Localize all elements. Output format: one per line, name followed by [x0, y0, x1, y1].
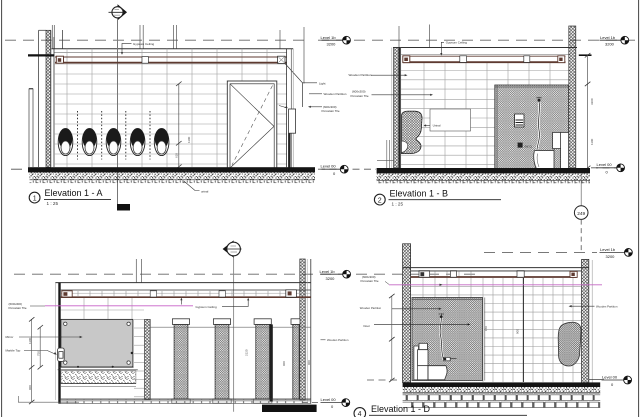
svg-text:610: 610 [175, 153, 179, 158]
svg-text:249: 249 [577, 211, 585, 217]
svg-text:Wooden Partition: Wooden Partition [349, 73, 372, 77]
svg-text:Urinal: Urinal [433, 124, 441, 128]
svg-text:Door: Door [364, 324, 371, 328]
svg-text:1: 1 [33, 195, 37, 202]
svg-text:Elevation 1 - A: Elevation 1 - A [45, 188, 103, 198]
svg-text:Level 00: Level 00 [597, 162, 613, 167]
svg-text:Elevation 1 - D: Elevation 1 - D [371, 404, 431, 414]
svg-text:Porcelain Tile: Porcelain Tile [351, 94, 369, 98]
svg-text:Porcelain Tile: Porcelain Tile [322, 109, 340, 113]
svg-text:900: 900 [28, 385, 32, 390]
svg-text:150: 150 [484, 326, 488, 331]
svg-text:Wooden Partition: Wooden Partition [327, 338, 349, 342]
svg-text:3200: 3200 [326, 276, 336, 281]
svg-text:1 : 25: 1 : 25 [47, 201, 59, 206]
svg-text:2: 2 [378, 197, 382, 204]
svg-text:Level 1b: Level 1b [600, 247, 616, 252]
svg-text:3200: 3200 [590, 98, 594, 105]
svg-text:1100: 1100 [28, 337, 32, 344]
svg-text:Porcelain Tile: Porcelain Tile [361, 279, 379, 283]
svg-text:Wooden Partition: Wooden Partition [360, 306, 382, 310]
svg-text:3200: 3200 [327, 42, 337, 47]
svg-text:Level 00: Level 00 [321, 397, 337, 402]
svg-text:Level 00: Level 00 [602, 375, 618, 380]
svg-text:(W.C): (W.C) [525, 144, 533, 148]
svg-text:Marble Top: Marble Top [6, 349, 21, 353]
svg-text:Gypsum Ceiling: Gypsum Ceiling [196, 305, 218, 309]
svg-text:3200: 3200 [605, 42, 615, 47]
svg-text:1100: 1100 [187, 136, 191, 143]
svg-text:4: 4 [358, 411, 362, 417]
svg-text:750: 750 [36, 351, 40, 356]
svg-text:1 : 25: 1 : 25 [392, 202, 404, 207]
svg-text:Wooden Partition: Wooden Partition [324, 92, 347, 96]
svg-text:Level 1b: Level 1b [600, 35, 616, 40]
svg-text:urinal: urinal [201, 190, 209, 194]
svg-text:Mirror: Mirror [6, 335, 14, 339]
svg-text:Porcelain Tile: Porcelain Tile [9, 306, 27, 310]
svg-text:Elevation 1 - B: Elevation 1 - B [390, 189, 449, 199]
svg-text:3200: 3200 [606, 254, 616, 259]
svg-text:Gypsum Ceiling: Gypsum Ceiling [446, 41, 468, 45]
svg-text:Wooden Partition: Wooden Partition [596, 305, 618, 309]
svg-text:1100: 1100 [590, 138, 594, 145]
svg-text:900: 900 [307, 360, 311, 365]
svg-text:Level 1b: Level 1b [321, 35, 337, 40]
svg-text:Level 00: Level 00 [321, 164, 337, 169]
svg-text:900: 900 [515, 329, 519, 334]
svg-text:Light: Light [319, 82, 326, 86]
svg-text:Level 1b: Level 1b [320, 269, 336, 274]
svg-text:2120: 2120 [244, 349, 248, 356]
svg-text:Gypsum Ceiling: Gypsum Ceiling [133, 42, 155, 46]
svg-text:900: 900 [282, 361, 286, 366]
